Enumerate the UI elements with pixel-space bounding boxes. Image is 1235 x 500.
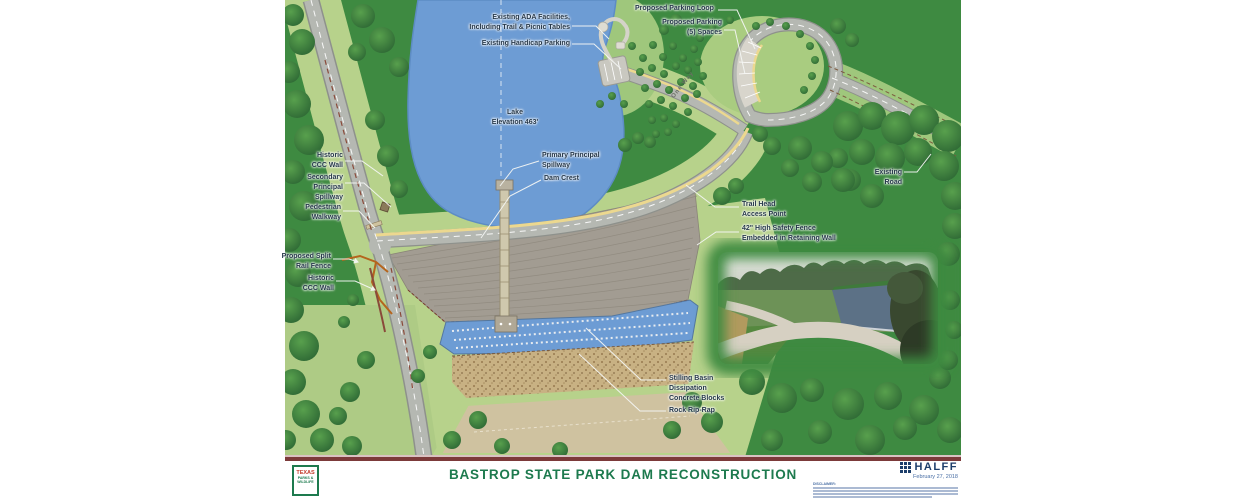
disclaimer-fineprint-line [813, 487, 958, 489]
label-stilling-basin: Stilling BasinDissipationConcrete Blocks [669, 374, 724, 404]
label-ada-facilities: Existing ADA Facilities,Including Trail … [469, 13, 570, 33]
label-historic-ccc-lower: HistoricCCC Wall [303, 274, 334, 294]
label-trail-head: Trail HeadAccess Point [742, 200, 786, 220]
sheet-title: BASTROP STATE PARK DAM RECONSTRUCTION [285, 467, 961, 482]
label-secondary-spillway: SecondaryPrincipalSpillway [307, 173, 343, 203]
label-rock-riprap: Rock Rip-Rap [669, 406, 715, 416]
halff-grid-icon [900, 462, 911, 473]
disclaimer-fineprint-line [813, 493, 958, 495]
disclaimer-fineprint-line [813, 496, 932, 498]
label-primary-spillway: Primary PrincipalSpillway [542, 151, 600, 171]
disclaimer-fineprint-line [813, 490, 958, 492]
disclaimer-block: DISCLAIMER: [813, 482, 958, 498]
label-existing-road: ExistingRoad [875, 168, 902, 188]
label-parking-loop: Proposed Parking Loop [635, 4, 714, 14]
disclaimer-heading: DISCLAIMER: [813, 482, 958, 486]
label-pedestrian-walkway: PedestrianWalkway [305, 203, 341, 223]
halff-logo: HALFF [900, 461, 958, 473]
site-plan-sheet: Existing ADA Facilities,Including Trail … [0, 0, 1235, 500]
sheet-date: February 27, 2018 [913, 474, 958, 480]
label-parking-spaces: Proposed Parking(5) Spaces [662, 18, 722, 38]
label-dam-crest: Dam Crest [544, 174, 579, 184]
site-plan-map [0, 0, 1235, 500]
halff-name: HALFF [914, 461, 958, 473]
label-historic-ccc-upper: HistoricCCC Wall [312, 151, 343, 171]
label-handicap-parking: Existing Handicap Parking [482, 39, 570, 49]
photo-inset [716, 250, 960, 380]
label-split-rail-fence: Proposed SplitRail Fence [282, 252, 331, 272]
label-lake-elevation: LakeElevation 463' [465, 108, 565, 128]
label-safety-fence: 42" High Safety FenceEmbedded in Retaini… [742, 224, 836, 244]
